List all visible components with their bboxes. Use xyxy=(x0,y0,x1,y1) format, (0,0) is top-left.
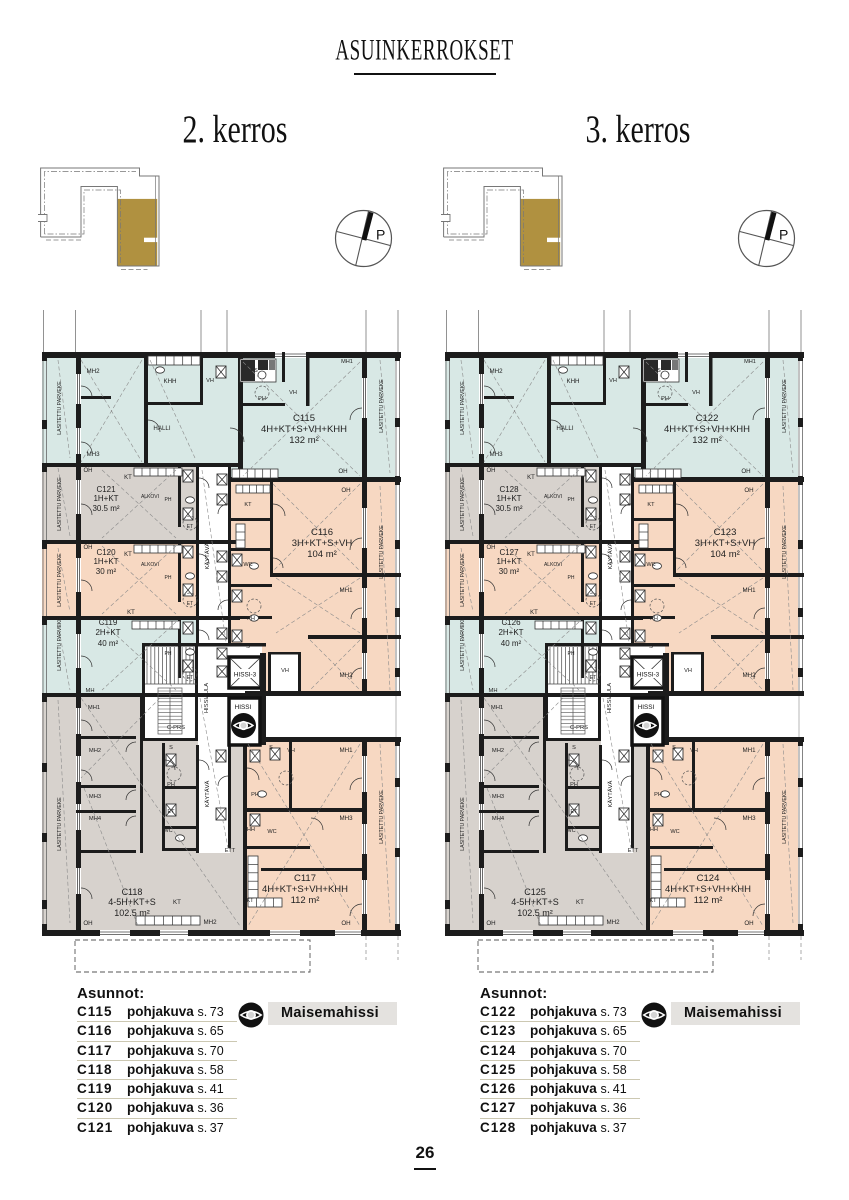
svg-text:VH: VH xyxy=(289,390,297,396)
svg-text:PH: PH xyxy=(570,782,578,788)
svg-text:ET: ET xyxy=(570,809,578,815)
svg-text:MH2: MH2 xyxy=(606,919,620,926)
svg-text:4H+KT+S+VH+KHH: 4H+KT+S+VH+KHH xyxy=(665,884,751,895)
svg-text:ET: ET xyxy=(590,675,596,681)
svg-text:LASITETTU PARVEKE: LASITETTU PARVEKE xyxy=(460,477,466,531)
svg-text:HISSI: HISSI xyxy=(638,704,655,711)
svg-text:VH: VH xyxy=(609,378,617,384)
svg-text:112 m²: 112 m² xyxy=(694,895,723,906)
svg-text:ET: ET xyxy=(187,601,193,607)
svg-text:KT: KT xyxy=(246,898,254,904)
svg-text:PH: PH xyxy=(568,651,575,657)
svg-text:KT: KT xyxy=(647,502,655,508)
svg-text:PH: PH xyxy=(568,497,575,503)
svg-text:ALKOVI: ALKOVI xyxy=(544,494,562,500)
svg-text:4-5H+KT+S: 4-5H+KT+S xyxy=(511,897,559,907)
svg-text:MH3: MH3 xyxy=(339,815,353,822)
svg-text:LASITETTU PARVEKE: LASITETTU PARVEKE xyxy=(379,790,385,844)
svg-text:PH: PH xyxy=(165,651,172,657)
svg-text:LASITETTU PARVEKE: LASITETTU PARVEKE xyxy=(460,797,466,851)
svg-text:KÄYTÄVÄ: KÄYTÄVÄ xyxy=(204,781,211,808)
svg-text:MH1: MH1 xyxy=(742,747,756,754)
svg-text:104 m²: 104 m² xyxy=(710,549,740,560)
svg-text:MH1: MH1 xyxy=(744,359,756,365)
svg-text:MH4: MH4 xyxy=(89,816,102,822)
svg-text:KT: KT xyxy=(527,552,535,558)
svg-text:C122: C122 xyxy=(696,413,719,424)
svg-text:MH1: MH1 xyxy=(339,747,353,754)
svg-text:MH2: MH2 xyxy=(86,368,100,375)
svg-text:C-PRS: C-PRS xyxy=(570,725,588,731)
svg-text:VH: VH xyxy=(690,748,698,754)
svg-text:C117: C117 xyxy=(294,873,316,884)
svg-text:KHH: KHH xyxy=(243,827,255,833)
svg-text:ALKOVI: ALKOVI xyxy=(141,494,159,500)
svg-text:S: S xyxy=(649,644,653,650)
svg-text:C126: C126 xyxy=(501,618,521,627)
svg-text:MH2: MH2 xyxy=(89,748,101,754)
svg-text:C115: C115 xyxy=(293,413,315,424)
svg-text:MH3: MH3 xyxy=(492,794,504,800)
svg-text:KHH: KHH xyxy=(566,378,579,385)
svg-text:KT: KT xyxy=(127,610,135,616)
svg-text:HISSIAULA: HISSIAULA xyxy=(204,683,210,713)
svg-text:KT: KT xyxy=(124,475,132,481)
svg-text:OH: OH xyxy=(338,468,347,475)
svg-text:OH: OH xyxy=(83,920,92,927)
svg-text:OH: OH xyxy=(487,545,496,551)
svg-text:VH: VH xyxy=(206,378,214,384)
svg-text:C127: C127 xyxy=(499,548,519,557)
svg-text:LASITETTU PARVEKE: LASITETTU PARVEKE xyxy=(460,617,466,671)
svg-text:PH: PH xyxy=(165,497,172,503)
svg-text:4H+KT+S+VH+KHH: 4H+KT+S+VH+KHH xyxy=(664,424,750,435)
svg-text:S: S xyxy=(572,745,576,751)
svg-text:OH: OH xyxy=(486,920,495,927)
svg-text:132 m²: 132 m² xyxy=(289,435,319,446)
svg-text:ALKOVI: ALKOVI xyxy=(544,562,562,568)
svg-text:MH4: MH4 xyxy=(492,816,505,822)
svg-text:KHH: KHH xyxy=(163,378,176,385)
svg-text:30.5 m²: 30.5 m² xyxy=(495,504,522,513)
svg-text:C121: C121 xyxy=(96,485,116,494)
svg-text:VH: VH xyxy=(287,748,295,754)
svg-text:OH: OH xyxy=(487,468,496,474)
svg-text:OH: OH xyxy=(84,468,93,474)
svg-text:102.5 m²: 102.5 m² xyxy=(114,908,150,918)
svg-text:1H+KT: 1H+KT xyxy=(496,557,521,566)
svg-text:OH: OH xyxy=(84,545,93,551)
svg-text:S: S xyxy=(269,745,273,751)
svg-text:C123: C123 xyxy=(714,527,737,538)
svg-text:VH: VH xyxy=(281,668,289,674)
svg-text:PH: PH xyxy=(165,575,172,581)
svg-text:ETT: ETT xyxy=(225,848,236,854)
svg-text:LASITETTU PARVEKE: LASITETTU PARVEKE xyxy=(460,553,466,607)
svg-text:LASITETTU PARVEKE: LASITETTU PARVEKE xyxy=(782,790,788,844)
svg-text:ET: ET xyxy=(590,601,596,607)
svg-text:OH: OH xyxy=(744,920,753,927)
svg-text:30 m²: 30 m² xyxy=(96,567,117,576)
svg-text:KÄYTÄVÄ: KÄYTÄVÄ xyxy=(607,543,614,570)
svg-text:3H+KT+S+VH: 3H+KT+S+VH xyxy=(695,538,756,549)
svg-text:S: S xyxy=(169,745,173,751)
svg-text:LASITETTU PARVEKE: LASITETTU PARVEKE xyxy=(782,379,788,433)
svg-text:ETT: ETT xyxy=(628,848,639,854)
svg-text:MH1: MH1 xyxy=(341,359,353,365)
svg-text:PH: PH xyxy=(258,396,266,402)
svg-text:MH3: MH3 xyxy=(89,794,101,800)
svg-text:KT: KT xyxy=(649,898,657,904)
svg-text:KÄYTÄVÄ: KÄYTÄVÄ xyxy=(204,543,211,570)
svg-text:MH3: MH3 xyxy=(742,815,756,822)
svg-text:MH1: MH1 xyxy=(339,587,353,594)
svg-text:112 m²: 112 m² xyxy=(291,895,320,906)
svg-text:S: S xyxy=(672,745,676,751)
svg-text:132 m²: 132 m² xyxy=(692,435,722,446)
svg-text:LASITETTU PARVEKE: LASITETTU PARVEKE xyxy=(379,379,385,433)
svg-text:LASITETTU PARVEKE: LASITETTU PARVEKE xyxy=(57,797,63,851)
svg-text:MH2: MH2 xyxy=(339,672,353,679)
svg-text:P: P xyxy=(376,227,385,243)
svg-text:PH: PH xyxy=(247,616,255,622)
svg-text:LASITETTU PARVEKE: LASITETTU PARVEKE xyxy=(782,525,788,579)
svg-text:LASITETTU PARVEKE: LASITETTU PARVEKE xyxy=(57,553,63,607)
svg-text:C128: C128 xyxy=(499,485,519,494)
svg-text:WC: WC xyxy=(670,829,679,835)
svg-text:PH: PH xyxy=(661,396,669,402)
svg-text:MH2: MH2 xyxy=(492,748,504,754)
svg-text:PH: PH xyxy=(650,616,658,622)
svg-text:PH: PH xyxy=(568,575,575,581)
svg-text:1H+KT: 1H+KT xyxy=(496,494,521,503)
svg-text:MH2: MH2 xyxy=(742,672,756,679)
svg-text:4H+KT+S+VH+KHH: 4H+KT+S+VH+KHH xyxy=(262,884,348,895)
svg-text:C-PRS: C-PRS xyxy=(167,725,185,731)
svg-text:ALKOVI: ALKOVI xyxy=(141,562,159,568)
svg-text:KÄYTÄVÄ: KÄYTÄVÄ xyxy=(607,781,614,808)
svg-text:LASITETTU PARVEKE: LASITETTU PARVEKE xyxy=(57,617,63,671)
svg-text:30 m²: 30 m² xyxy=(499,567,520,576)
svg-text:LASITETTU PARVEKE: LASITETTU PARVEKE xyxy=(57,381,63,435)
svg-text:PH: PH xyxy=(251,792,259,798)
svg-text:WC: WC xyxy=(267,829,276,835)
svg-text:MH1: MH1 xyxy=(491,705,503,711)
svg-text:HALLI: HALLI xyxy=(556,425,573,432)
svg-text:HISSI-3: HISSI-3 xyxy=(234,672,257,679)
svg-text:OH: OH xyxy=(741,468,750,475)
svg-text:3H+KT+S+VH: 3H+KT+S+VH xyxy=(292,538,353,549)
svg-text:2H+KT: 2H+KT xyxy=(95,628,120,637)
svg-text:WC: WC xyxy=(243,562,252,568)
svg-text:LASITETTU PARVEKE: LASITETTU PARVEKE xyxy=(379,525,385,579)
svg-text:KT: KT xyxy=(244,502,252,508)
svg-text:VH: VH xyxy=(684,668,692,674)
svg-text:WC: WC xyxy=(566,828,575,834)
svg-text:102.5 m²: 102.5 m² xyxy=(517,908,553,918)
svg-text:C125: C125 xyxy=(524,887,546,897)
svg-text:1H+KT: 1H+KT xyxy=(93,557,118,566)
svg-text:40 m²: 40 m² xyxy=(98,639,119,648)
svg-text:C124: C124 xyxy=(697,873,720,884)
svg-text:C118: C118 xyxy=(122,887,143,897)
svg-text:MH1: MH1 xyxy=(742,587,756,594)
svg-text:ET: ET xyxy=(167,809,175,815)
svg-text:ET: ET xyxy=(187,675,193,681)
svg-text:HALLI: HALLI xyxy=(153,425,170,432)
svg-text:30.5 m²: 30.5 m² xyxy=(92,504,119,513)
svg-text:HISSI-3: HISSI-3 xyxy=(637,672,660,679)
svg-text:MH3: MH3 xyxy=(489,451,503,458)
svg-text:HISSIAULA: HISSIAULA xyxy=(607,683,613,713)
svg-text:104 m²: 104 m² xyxy=(307,549,337,560)
svg-text:KHH: KHH xyxy=(646,827,658,833)
svg-text:2H+KT: 2H+KT xyxy=(498,628,523,637)
svg-text:KT: KT xyxy=(527,475,535,481)
svg-text:MH2: MH2 xyxy=(489,368,503,375)
svg-text:C119: C119 xyxy=(99,618,118,627)
svg-text:LASITETTU PARVEKE: LASITETTU PARVEKE xyxy=(460,381,466,435)
svg-text:1H+KT: 1H+KT xyxy=(93,494,118,503)
svg-text:C116: C116 xyxy=(311,527,333,538)
svg-text:4-5H+KT+S: 4-5H+KT+S xyxy=(108,897,156,907)
svg-text:PH: PH xyxy=(654,792,662,798)
svg-text:OH: OH xyxy=(341,920,350,927)
svg-text:MH1: MH1 xyxy=(88,705,100,711)
svg-text:WC: WC xyxy=(163,828,172,834)
svg-text:ET: ET xyxy=(590,524,596,530)
svg-text:40 m²: 40 m² xyxy=(501,639,522,648)
svg-text:HISSI: HISSI xyxy=(235,704,252,711)
svg-text:OH: OH xyxy=(744,487,753,494)
svg-text:KT: KT xyxy=(124,552,132,558)
svg-text:LASITETTU PARVEKE: LASITETTU PARVEKE xyxy=(57,477,63,531)
svg-text:P: P xyxy=(779,227,788,243)
svg-text:OH: OH xyxy=(341,487,350,494)
svg-text:MH3: MH3 xyxy=(86,451,100,458)
svg-text:MH: MH xyxy=(85,688,94,694)
svg-text:C120: C120 xyxy=(96,548,116,557)
svg-text:KT: KT xyxy=(530,610,538,616)
svg-text:VH: VH xyxy=(692,390,700,396)
svg-text:MH2: MH2 xyxy=(203,919,217,926)
svg-text:KT: KT xyxy=(173,899,181,906)
svg-text:4H+KT+S+VH+KHH: 4H+KT+S+VH+KHH xyxy=(261,424,347,435)
svg-text:PH: PH xyxy=(167,782,175,788)
svg-text:WC: WC xyxy=(646,562,655,568)
svg-text:KT: KT xyxy=(576,899,584,906)
svg-text:S: S xyxy=(246,644,250,650)
svg-text:ET: ET xyxy=(187,524,193,530)
svg-text:MH: MH xyxy=(488,688,497,694)
